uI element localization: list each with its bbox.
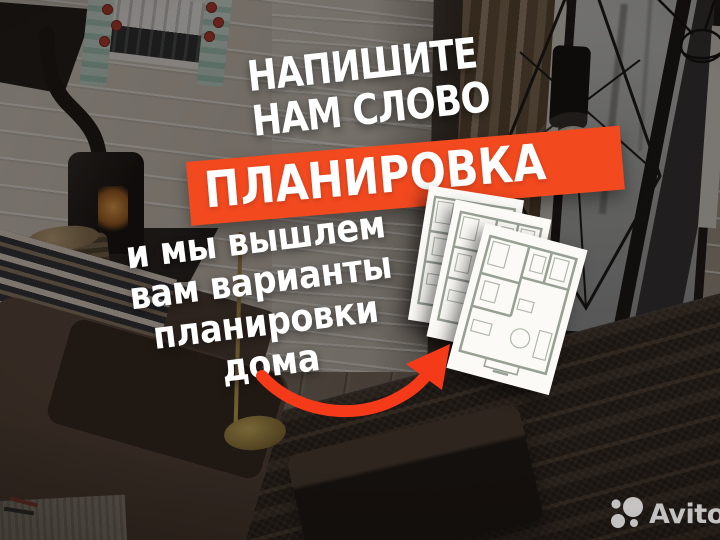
ad-text-layer: НАПИШИТЕ НАМ СЛОВО ПЛАНИРОВКА и мы вышле… [0,0,720,540]
arrow-shaft [262,370,430,411]
avito-dots-icon [606,494,646,534]
swoosh-arrow-icon [246,336,461,431]
ad-canvas: НАПИШИТЕ НАМ СЛОВО ПЛАНИРОВКА и мы вышле… [0,0,720,540]
headline: НАПИШИТЕ НАМ СЛОВО [245,33,470,145]
avito-wordmark: Avito [649,499,720,530]
avito-watermark: Avito [606,494,718,534]
